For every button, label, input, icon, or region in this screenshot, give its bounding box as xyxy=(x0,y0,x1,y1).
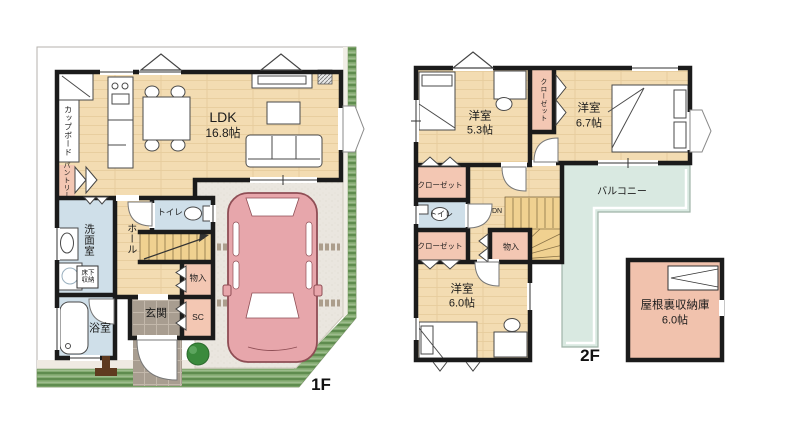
floor1-plan xyxy=(37,47,364,387)
attic-ladder xyxy=(668,266,718,290)
car-rear-window xyxy=(246,198,299,216)
floorplan-drawing xyxy=(0,0,800,435)
sofa xyxy=(246,135,322,167)
bath-fixtures xyxy=(60,302,88,354)
kitchen-island xyxy=(108,120,133,168)
tree xyxy=(187,343,209,365)
closet-vertical-room xyxy=(530,68,554,132)
car-mirror-right xyxy=(314,285,322,296)
desk-53 xyxy=(494,71,526,99)
tree-highlight xyxy=(189,346,197,354)
underfloor-storage-box xyxy=(77,266,98,288)
desk-60 xyxy=(494,332,527,357)
casement-window-marks xyxy=(433,362,480,371)
closet-a-room xyxy=(416,167,468,200)
floorplan-canvas: カップボード パントリー LDK 16.8帖 洗面室 床下 収納 ホール トイレ… xyxy=(0,0,800,435)
car xyxy=(223,193,322,362)
storage-closet-1f xyxy=(184,262,213,297)
storage-2f-room xyxy=(490,230,530,262)
closet-b-room xyxy=(416,230,468,262)
bedroom-60-furniture xyxy=(419,319,527,359)
entrance-room xyxy=(130,297,180,338)
floor2-plan xyxy=(411,52,724,371)
toilet-fixture-1f xyxy=(185,206,212,221)
coffee-table xyxy=(267,102,300,124)
pantry-closet xyxy=(57,165,75,196)
chair-60 xyxy=(504,319,520,332)
staircase-1f xyxy=(140,232,213,262)
bay-window-arrow xyxy=(343,106,364,152)
dining-table xyxy=(143,97,190,140)
attic-vent xyxy=(719,300,724,316)
attic-storage xyxy=(628,260,724,360)
chair-53 xyxy=(496,98,512,111)
side-path xyxy=(343,47,348,318)
gable-marker xyxy=(453,52,493,68)
bay-window-arrow xyxy=(690,110,711,152)
car-windshield xyxy=(246,293,299,318)
shoe-closet xyxy=(184,297,213,338)
car-mirror-left xyxy=(223,285,231,296)
refrigerator xyxy=(57,73,93,100)
bedroom-67-furniture xyxy=(608,85,688,152)
bathtub xyxy=(60,302,88,354)
cupboard-cabinet xyxy=(57,100,79,162)
